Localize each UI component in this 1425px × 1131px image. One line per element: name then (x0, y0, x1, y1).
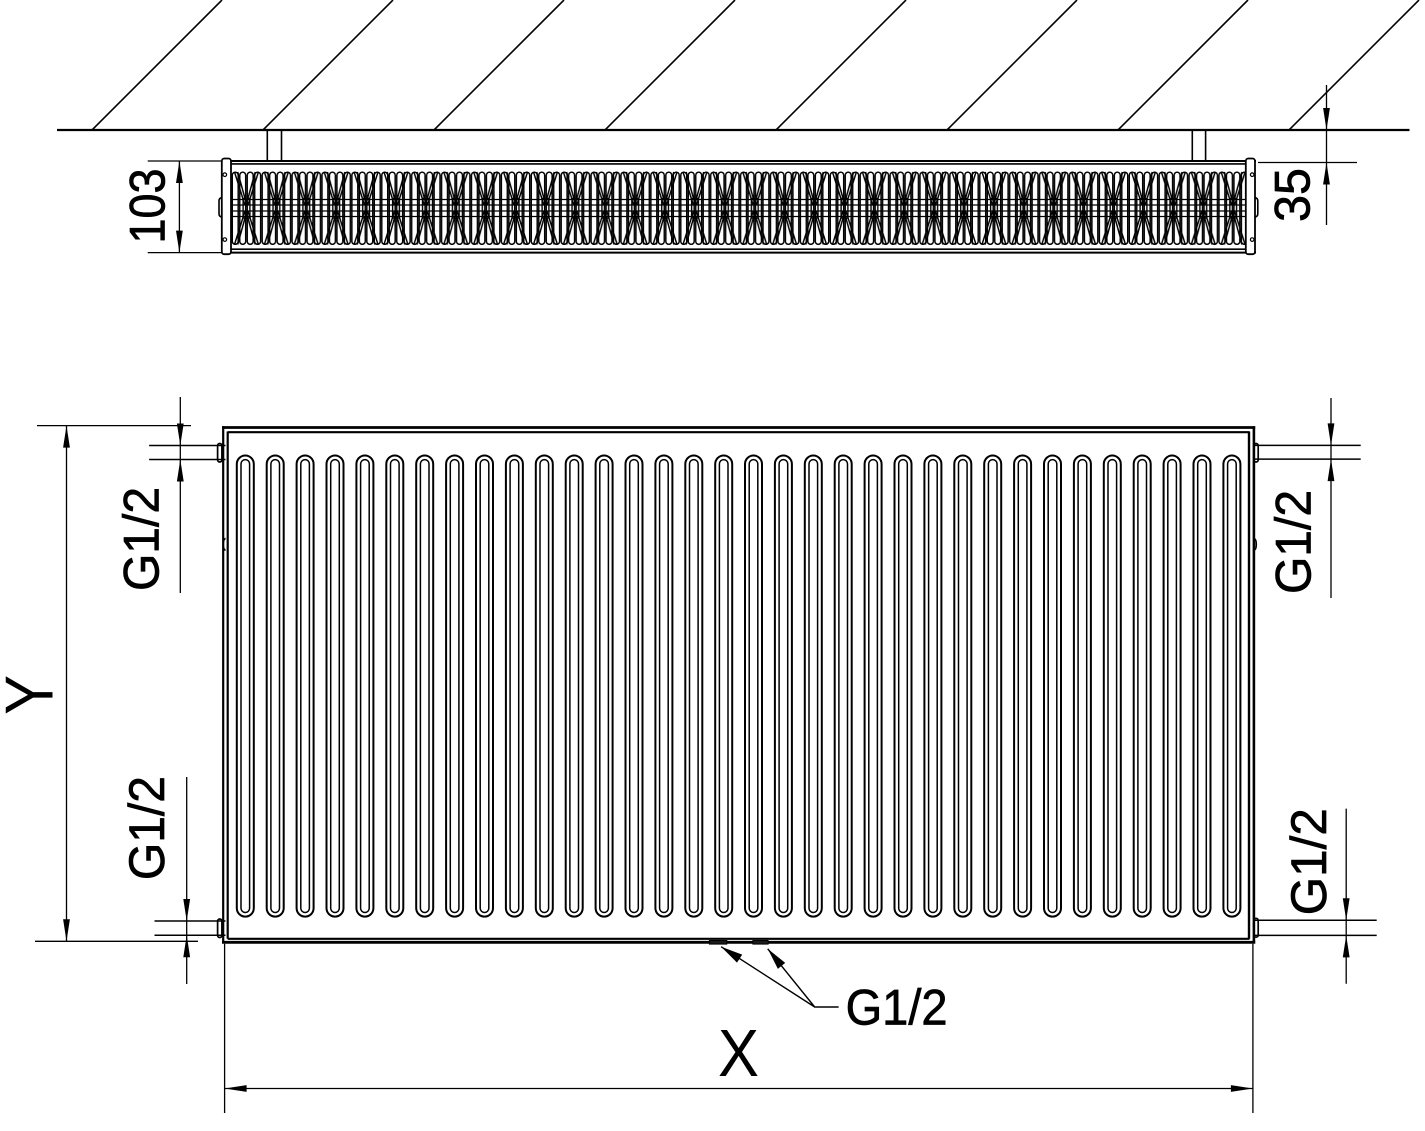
svg-text:G1/2: G1/2 (119, 776, 175, 880)
svg-text:103: 103 (120, 169, 176, 244)
svg-text:G1/2: G1/2 (1281, 808, 1337, 915)
svg-text:X: X (718, 1016, 759, 1091)
svg-text:35: 35 (1265, 168, 1321, 222)
svg-text:Y: Y (0, 675, 67, 715)
svg-text:G1/2: G1/2 (846, 979, 948, 1035)
svg-text:G1/2: G1/2 (1266, 490, 1322, 594)
svg-text:G1/2: G1/2 (113, 487, 169, 591)
